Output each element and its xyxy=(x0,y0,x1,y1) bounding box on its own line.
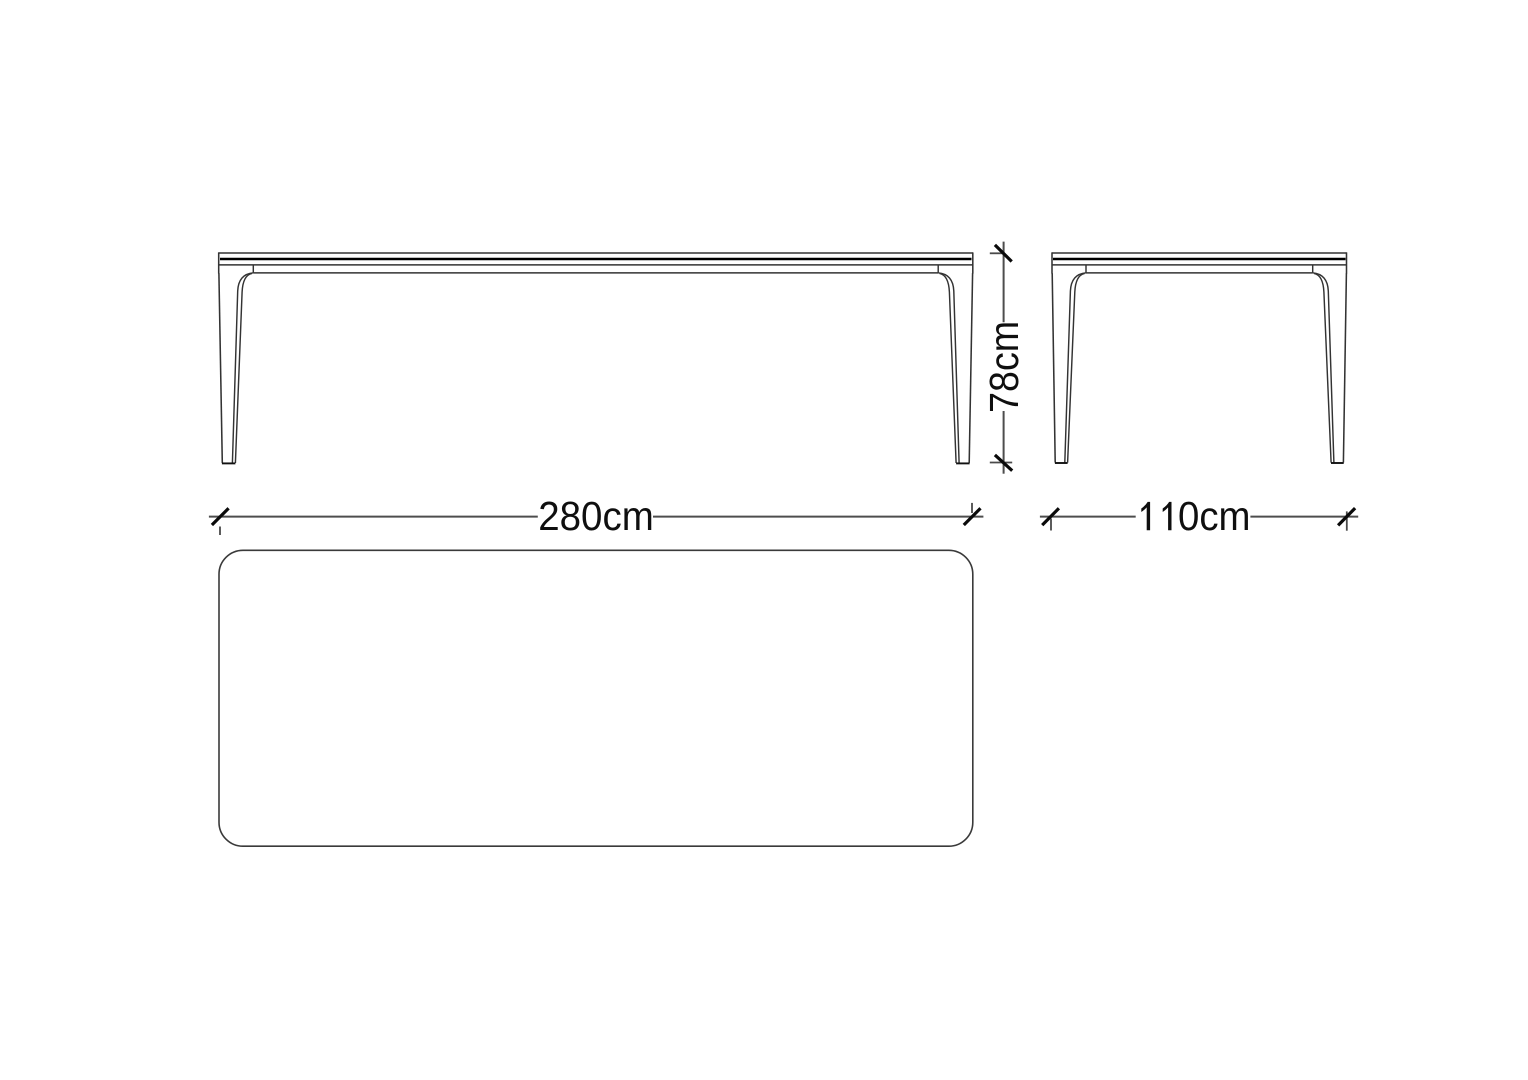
svg-text:0cm: 0cm xyxy=(1178,493,1251,539)
svg-text:78cm: 78cm xyxy=(981,321,1027,413)
svg-text:280cm: 280cm xyxy=(538,493,654,539)
